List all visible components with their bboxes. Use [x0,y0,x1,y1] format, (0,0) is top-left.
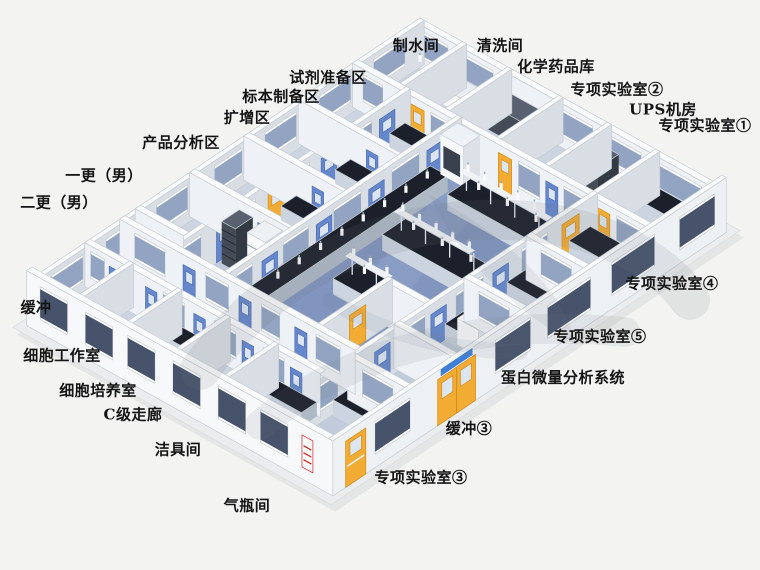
label-special-lab-1: 专项实验室① [658,115,751,136]
bottle-cap [507,197,509,199]
label-buffer-3: 缓冲③ [446,418,493,439]
label-product-analysis-area: 产品分析区 [142,132,220,153]
label-special-lab-3: 专项实验室③ [374,467,467,488]
label-first-change-male: 一更（男） [65,165,143,186]
bottle [426,172,429,179]
bottle [383,200,386,207]
bottle-cap [384,198,386,200]
lab-floorplan-render: 制水间 清洗间 化学药品库 专项实验室② UPS机房 专项实验室① 试剂准备区 … [0,0,760,570]
warning-sign [302,435,313,473]
bottle-cap [386,265,388,267]
bottle-cap [341,227,343,229]
bottle-cap [426,169,428,171]
label-protein-microanalysis-system: 蛋白微量分析系统 [501,367,625,388]
bottle [385,267,388,274]
bottle [418,55,421,62]
bottle-cap [402,202,404,204]
label-specimen-prep-area: 标本制备区 [242,86,320,107]
label-water-production-room: 制水间 [393,35,440,56]
label-second-change-male: 二更（男） [20,192,98,213]
bottle-cap [405,184,407,186]
label-buffer-left: 缓冲 [20,297,51,318]
bottle [404,186,407,193]
bottle [500,183,503,190]
label-gas-cylinder-room: 气瓶间 [224,495,271,516]
label-special-lab-2: 专项实验室② [570,79,663,100]
bottle-cap [467,162,469,164]
label-chemical-storage: 化学药品库 [517,56,595,77]
label-c-grade-corridor: C级走廊 [104,404,163,425]
bottle-cap [478,181,480,183]
label-cleaning-tools-room: 洁具间 [155,439,202,460]
label-amplification-area: 扩增区 [224,107,271,128]
bottle-cap [362,212,364,214]
bottle [477,183,480,190]
bottle-cap [364,265,366,267]
bottle [362,214,365,221]
label-special-lab-4: 专项实验室④ [625,273,718,294]
bottle-cap [484,172,486,174]
bottle [516,192,519,199]
label-washing-room: 清洗间 [477,35,524,56]
bottle [483,174,486,181]
label-special-lab-5: 专项实验室⑤ [553,326,646,347]
label-cell-workroom: 细胞工作室 [23,345,101,366]
bottle [466,165,469,172]
bottle-cap [517,190,519,192]
label-reagent-prep-area: 试剂准备区 [289,67,367,88]
bottle-cap [534,199,536,201]
bottle-cap [500,181,502,183]
label-cell-culture-room: 细胞培养室 [59,380,137,401]
bottle [363,267,366,274]
